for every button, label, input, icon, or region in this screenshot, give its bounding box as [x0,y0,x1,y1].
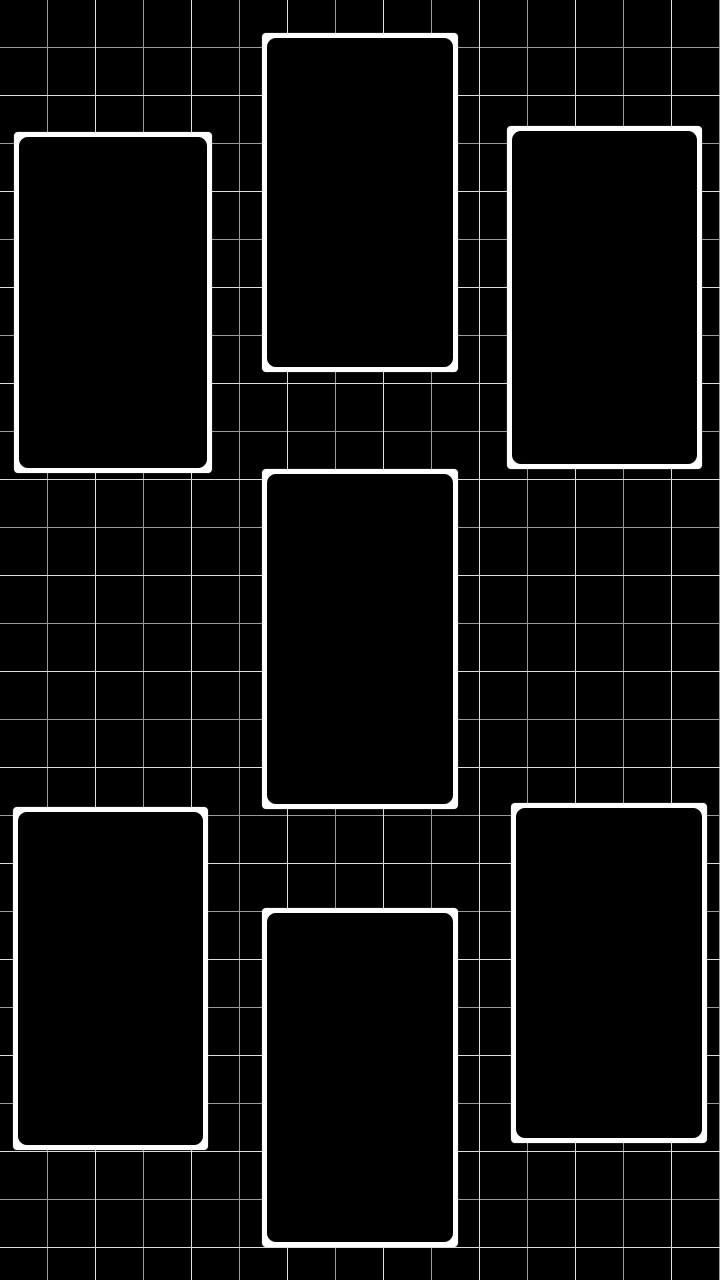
photo-frame-bottom-left [13,807,208,1150]
photo-frame-inner [267,913,453,1242]
photo-frame-top-left [14,132,212,473]
photo-frame-top-right [507,126,702,469]
photo-frame-bottom-center [262,908,458,1247]
photo-frame-inner [267,474,453,804]
photo-frame-inner [267,38,453,367]
photo-frame-inner [516,808,702,1138]
photo-frame-inner [18,812,203,1145]
wallpaper-canvas [0,0,720,1280]
photo-frame-bottom-right [511,803,707,1143]
photo-frame-top-center [262,33,458,372]
photo-frame-middle-center [262,469,458,809]
photo-frame-inner [512,131,697,464]
photo-frame-inner [19,137,207,468]
frame-layer [0,0,720,1280]
